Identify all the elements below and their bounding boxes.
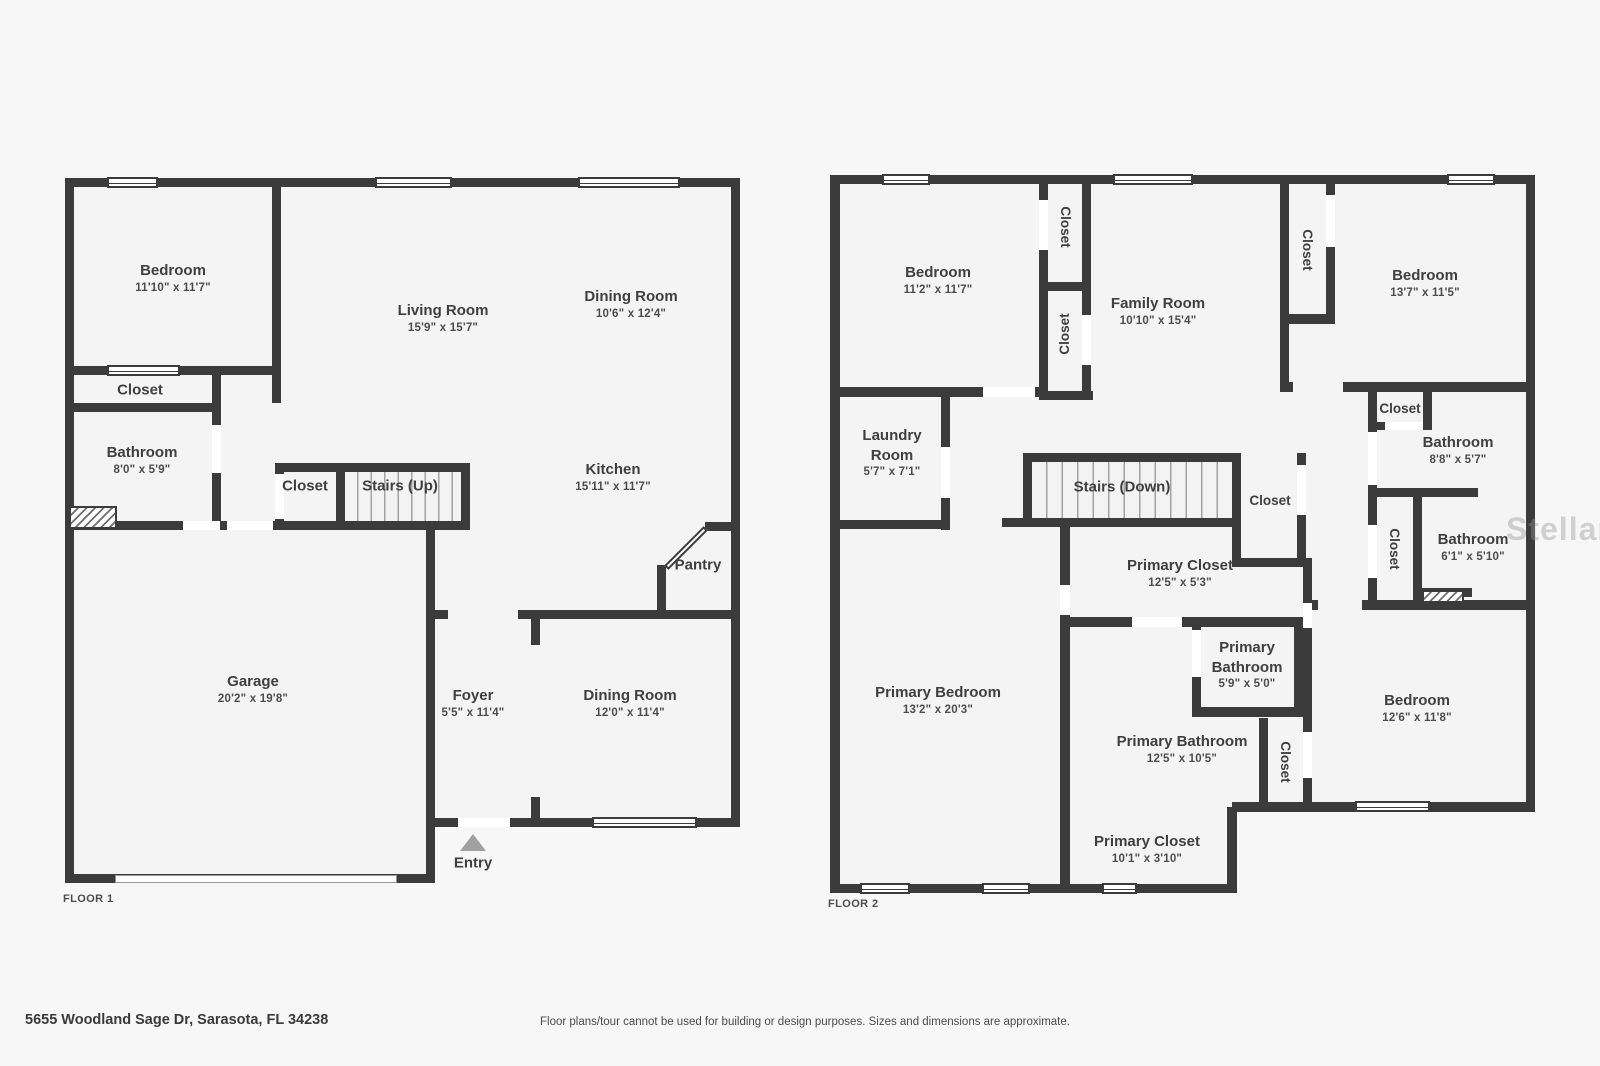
wall	[705, 522, 740, 531]
wall	[830, 175, 840, 893]
wall	[1023, 453, 1032, 527]
door-opening	[1303, 732, 1312, 778]
entry-door-opening	[458, 818, 510, 827]
room-label-bedroom: Bedroom 11'10" x 11'7"	[135, 261, 210, 295]
window	[578, 177, 680, 188]
floor-plan-page: { "floor1": { "tag": "FLOOR 1", "bedroom…	[0, 0, 1600, 1066]
room-label-closet: Closet	[117, 380, 163, 400]
window	[592, 817, 697, 828]
room-label-pantry: Pantry	[675, 555, 722, 575]
wall	[1294, 617, 1303, 717]
room-label-closet-tr: Closet	[1298, 229, 1316, 270]
room-label-living-room: Living Room 15'9" x 15'7"	[398, 301, 489, 335]
disclaimer-text: Floor plans/tour cannot be used for buil…	[540, 1016, 1070, 1028]
wall	[1060, 527, 1070, 884]
room-label-bedroom-br: Bedroom 12'6" x 11'8"	[1382, 691, 1452, 725]
window	[982, 883, 1030, 894]
wall	[1280, 184, 1289, 392]
wall	[1192, 707, 1303, 717]
wall	[1526, 175, 1535, 812]
room-label-stairs-down: Stairs (Down)	[1074, 477, 1171, 497]
window	[107, 177, 158, 188]
stellar-mls-watermark: StellarMLS	[1506, 511, 1600, 548]
door-opening	[941, 447, 950, 498]
door-opening	[1368, 432, 1377, 485]
door-opening	[983, 387, 1035, 397]
wall	[1227, 807, 1237, 893]
door-opening	[1060, 585, 1070, 615]
wall	[731, 178, 740, 827]
door-opening	[212, 425, 221, 473]
room-label-closet-br: Closet	[1276, 741, 1294, 782]
door-opening	[1297, 465, 1306, 515]
room-label-laundry-room: Laundry Room 5'7" x 7'1"	[842, 426, 942, 480]
room-label-bedroom-tl: Bedroom 11'2" x 11'7"	[904, 263, 973, 297]
room-label-family-room: Family Room 10'10" x 15'4"	[1111, 294, 1205, 328]
room-label-primary-bathroom-small: Primary Bathroom 5'9" x 5'0"	[1203, 638, 1291, 692]
room-label-closet-mid: Closet	[1385, 528, 1403, 569]
wall	[1039, 391, 1093, 400]
wall	[1082, 184, 1091, 400]
wall	[657, 565, 666, 619]
closet-opening	[107, 365, 180, 376]
wall	[1343, 382, 1535, 392]
window	[882, 174, 930, 185]
wall	[1039, 282, 1091, 291]
door-opening	[1039, 200, 1048, 250]
wall	[840, 520, 950, 529]
wall	[531, 797, 540, 818]
window	[860, 883, 910, 894]
wall	[1280, 314, 1335, 324]
room-label-bathroom-top: Bathroom 8'8" x 5'7"	[1423, 433, 1494, 467]
room-label-dining-room-top: Dining Room 10'6" x 12'4"	[584, 287, 677, 321]
wall	[461, 463, 470, 530]
room-label-closet-stairs: Closet	[282, 476, 328, 496]
room-label-bathroom-right: Bathroom 6'1" x 5'10"	[1438, 530, 1509, 564]
room-label-kitchen: Kitchen 15'11" x 11'7"	[575, 460, 650, 494]
room-label-bathroom: Bathroom 8'0" x 5'9"	[107, 443, 178, 477]
wall	[426, 521, 435, 883]
room-label-closet-tl-upper: Closet	[1056, 206, 1074, 247]
door-opening	[1303, 603, 1312, 628]
wall	[531, 619, 540, 645]
property-address: 5655 Woodland Sage Dr, Sarasota, FL 3423…	[25, 1012, 328, 1028]
door-opening	[1132, 617, 1182, 627]
window	[1113, 174, 1193, 185]
wall	[65, 403, 221, 412]
room-label-primary-closet-b: Primary Closet 10'1" x 3'10"	[1094, 832, 1200, 866]
wall	[1259, 718, 1268, 807]
room-label-primary-bathroom-large: Primary Bathroom 12'5" x 10'5"	[1117, 732, 1248, 766]
garage-door	[115, 875, 397, 883]
room-label-stairs-up: Stairs (Up)	[362, 476, 438, 496]
room-label-dining-room-bottom: Dining Room 12'0" x 11'4"	[583, 686, 676, 720]
bathroom-window-hatch	[1422, 590, 1464, 603]
door-opening	[227, 521, 273, 530]
room-label-closet-tl-lower: Closet	[1056, 313, 1074, 354]
wall	[1002, 518, 1240, 527]
wall	[426, 610, 448, 619]
bathroom-window-hatch	[69, 506, 117, 529]
room-label-bedroom-tr: Bedroom 13'7" x 11'5"	[1390, 266, 1460, 300]
door-opening	[1385, 422, 1423, 430]
floor1-tag: FLOOR 1	[63, 893, 113, 905]
wall	[1023, 453, 1241, 462]
entry-label: Entry	[454, 853, 492, 873]
door-opening	[183, 521, 220, 530]
wall	[1368, 488, 1478, 497]
wall	[1312, 600, 1318, 610]
room-label-primary-bedroom: Primary Bedroom 13'2" x 20'3"	[875, 683, 1001, 717]
window	[1355, 801, 1430, 812]
room-label-closet-small: Closet	[1379, 400, 1420, 418]
door-opening	[1192, 630, 1201, 677]
room-label-closet-stairs: Closet	[1249, 492, 1290, 510]
wall	[1232, 558, 1306, 567]
wall	[275, 463, 470, 472]
wall	[1060, 617, 1312, 627]
room-label-primary-closet-a: Primary Closet 12'5" x 5'3"	[1127, 556, 1233, 590]
room-label-garage: Garage 20'2" x 19'8"	[218, 672, 288, 706]
door-opening	[1326, 195, 1335, 247]
window	[1102, 883, 1137, 894]
floor2-tag: FLOOR 2	[828, 898, 878, 910]
wall	[1232, 453, 1241, 567]
wall	[518, 610, 740, 619]
door-opening	[1082, 315, 1091, 365]
wall	[65, 178, 74, 883]
wall	[336, 463, 345, 530]
door-opening	[1368, 525, 1377, 578]
entry-marker-icon	[460, 834, 486, 851]
room-label-foyer: Foyer 5'5" x 11'4"	[442, 686, 505, 720]
window	[375, 177, 452, 188]
window	[1447, 174, 1495, 185]
